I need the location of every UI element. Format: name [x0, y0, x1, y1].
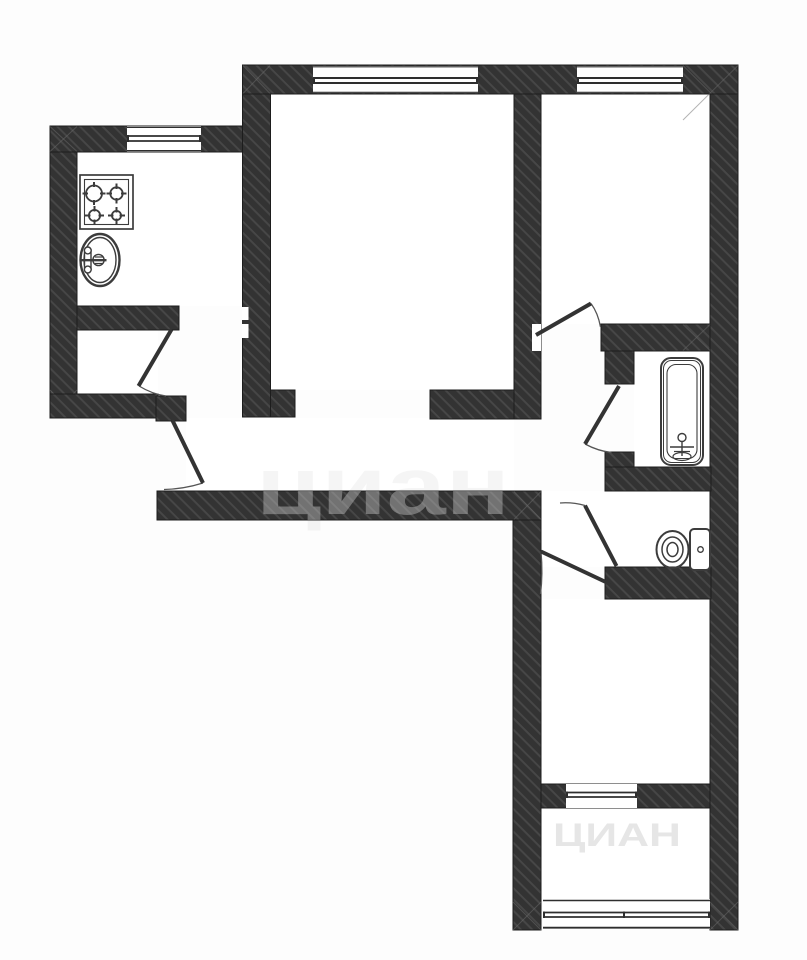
svg-text:ЦИАН: ЦИАН	[553, 817, 681, 853]
